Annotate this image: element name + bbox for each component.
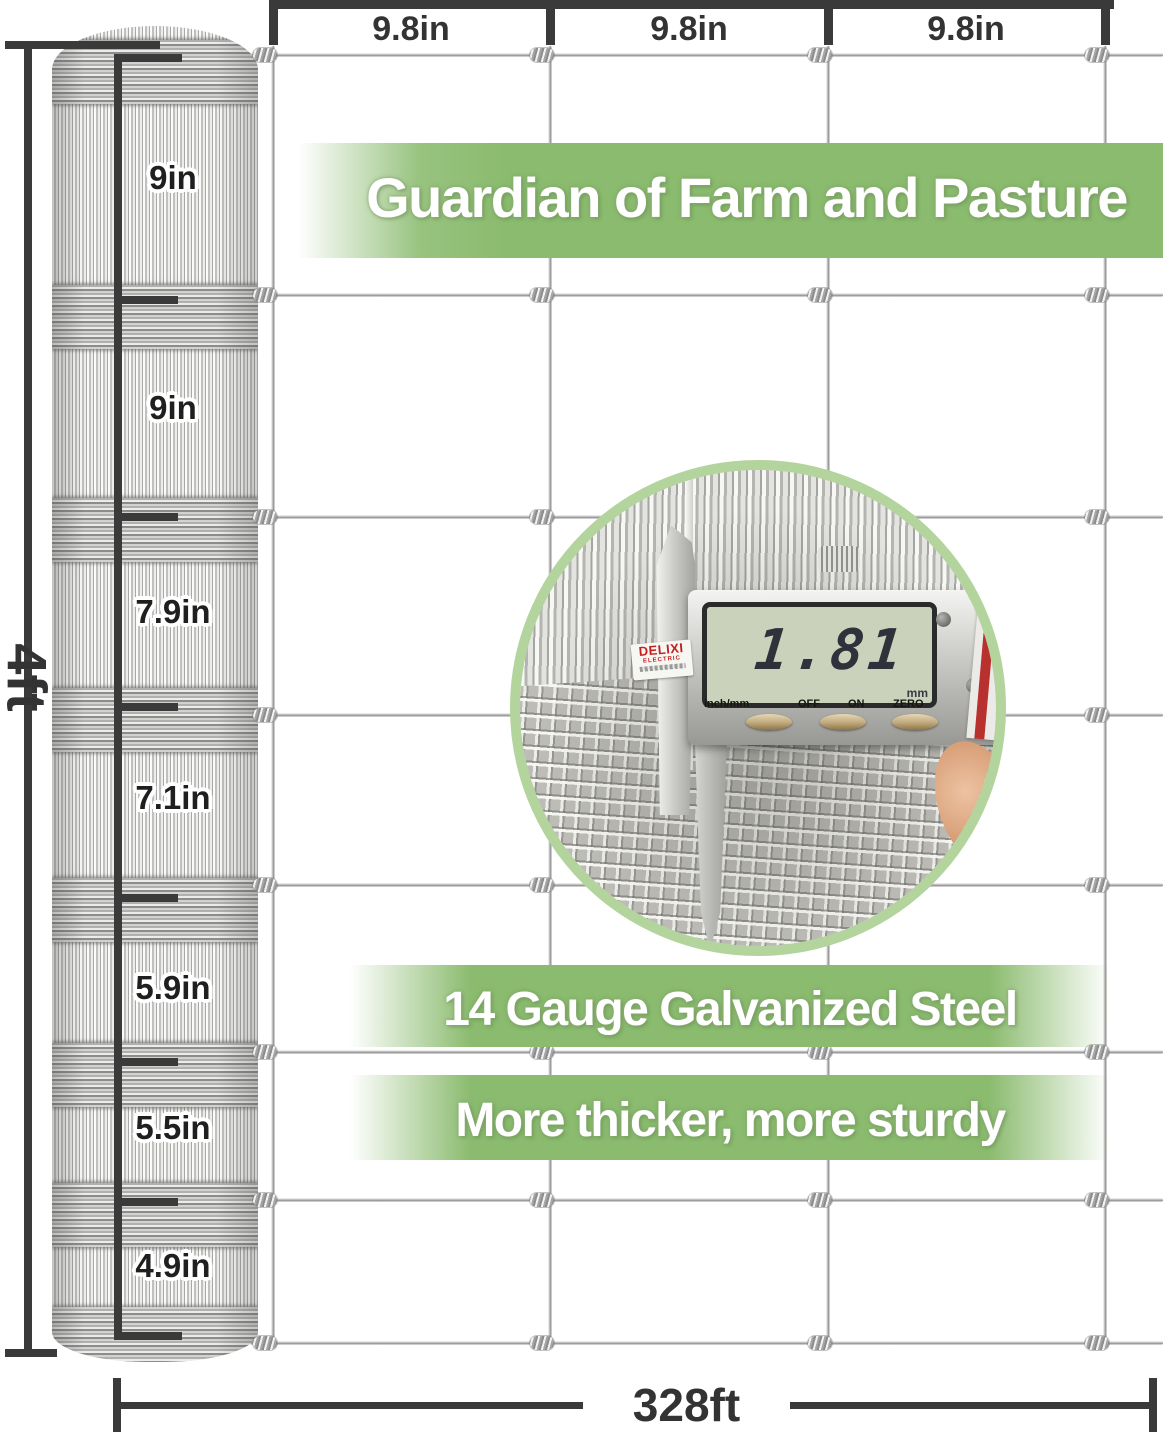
fence-wire-horizontal (250, 53, 1163, 57)
height-bracket-bottom-cap (5, 1349, 57, 1357)
fence-wire-horizontal (250, 1198, 1163, 1202)
fence-wire-vertical (271, 46, 275, 1347)
top-span-label: 9.8in (331, 10, 491, 49)
wire-knot (808, 288, 832, 302)
wire-knot (1085, 708, 1109, 722)
caliper-lcd: 1.81 mm (702, 602, 937, 708)
fence-wire-horizontal (250, 293, 1163, 297)
roll-segment-label: 9in (125, 159, 221, 197)
wire-knot (253, 878, 277, 892)
wire-knot (530, 288, 554, 302)
wire-knot (253, 708, 277, 722)
roll-segment-label: 7.9in (125, 593, 221, 631)
roll-wrap-band (52, 688, 258, 752)
caliper-button-off-on (820, 714, 866, 730)
wire-knot (1085, 510, 1109, 524)
roll-wrap-band (52, 1043, 258, 1107)
roll-wrap-band (52, 1183, 258, 1247)
wire-knot (1085, 1336, 1109, 1350)
brand-sticker: DELIXI ELECTRIC (631, 639, 694, 680)
caliper-label-on: ON (848, 698, 865, 710)
top-dimension-tick (824, 0, 833, 45)
ruler-red-stripe (974, 607, 995, 739)
caliper-reading: 1.81 (751, 609, 911, 693)
caliper-inset-photo: 1.81 mm inch/mm OFF ON ZERO DELIXI ELECT… (510, 460, 1006, 956)
wire-knot (808, 1045, 832, 1059)
wire-knot (530, 1045, 554, 1059)
top-dimension-tick (546, 0, 555, 45)
wire-knot (253, 510, 277, 524)
roll-wrap-band (52, 285, 258, 349)
headline-text: Guardian of Farm and Pasture (330, 165, 1163, 230)
wire-knot (1085, 1045, 1109, 1059)
caliper-label-zero: ZERO (893, 698, 924, 710)
feature-text-1: 14 Gauge Galvanized Steel (350, 982, 1110, 1037)
top-dimension-bar (269, 0, 1114, 9)
roll-measure-tick (114, 894, 178, 902)
wire-knot (1085, 48, 1109, 62)
roll-segment-label: 5.9in (125, 969, 221, 1007)
wire-knot (808, 48, 832, 62)
roll-measure-tick (114, 513, 178, 521)
top-span-label: 9.8in (609, 10, 769, 49)
roll-measure-line (114, 54, 122, 1340)
roll-segment-label: 4.9in (125, 1247, 221, 1285)
wire-knot (530, 48, 554, 62)
wire-knot (253, 288, 277, 302)
caliper-body: 1.81 mm inch/mm OFF ON ZERO (688, 590, 1006, 745)
top-span-label: 9.8in (886, 10, 1046, 49)
fence-wire-horizontal (250, 1341, 1163, 1345)
caliper-label-inchmm: inch/mm (704, 698, 749, 710)
length-line-right (790, 1402, 1154, 1409)
wire-knot (1085, 878, 1109, 892)
wire-knot (1085, 1193, 1109, 1207)
height-bracket-top-cap (5, 41, 160, 49)
feature-text-2: More thicker, more sturdy (350, 1093, 1110, 1148)
wire-knot (808, 1336, 832, 1350)
height-label: 4ft (0, 613, 60, 743)
roll-measure-bottom-corner (114, 1332, 182, 1340)
top-dimension-tick (1101, 0, 1110, 45)
roll-segment-label: 9in (125, 389, 221, 427)
caliper-screw-top (936, 612, 951, 627)
wire-knot (253, 48, 277, 62)
roll-segment-label: 7.1in (125, 779, 221, 817)
fence-wire-horizontal (250, 1050, 1163, 1054)
wire-knot (808, 1193, 832, 1207)
product-infographic: 9.8in9.8in9.8in 4ft 9in9in7.9in7.1in5.9i… (0, 0, 1163, 1434)
roll-measure-tick (114, 703, 178, 711)
wire-knot (1085, 288, 1109, 302)
roll-wrap-band (52, 40, 258, 104)
roll-wrap-band (52, 498, 258, 562)
roll-segment-label: 5.5in (125, 1109, 221, 1147)
roll-wrap-band (52, 878, 258, 942)
caliper-label-off: OFF (798, 698, 820, 710)
length-label: 328ft (583, 1378, 790, 1432)
roll-measure-tick (114, 296, 178, 304)
length-line-left (117, 1402, 583, 1409)
caliper-lock-screw (818, 546, 860, 572)
roll-measure-top-corner (114, 54, 182, 62)
wire-knot (253, 1193, 277, 1207)
caliper-button-mode (746, 714, 792, 730)
length-tick-right (1149, 1378, 1157, 1432)
fence-roll-image (52, 26, 258, 1362)
wire-knot (530, 1336, 554, 1350)
caliper-button-zero (892, 714, 938, 730)
ruler-ticks (995, 613, 1006, 735)
wire-knot (253, 1045, 277, 1059)
length-tick-left (113, 1378, 121, 1432)
roll-measure-tick (114, 1058, 178, 1066)
wire-knot (253, 1336, 277, 1350)
top-dimension-tick (269, 0, 278, 45)
wire-knot (530, 1193, 554, 1207)
roll-measure-tick (114, 1198, 178, 1206)
